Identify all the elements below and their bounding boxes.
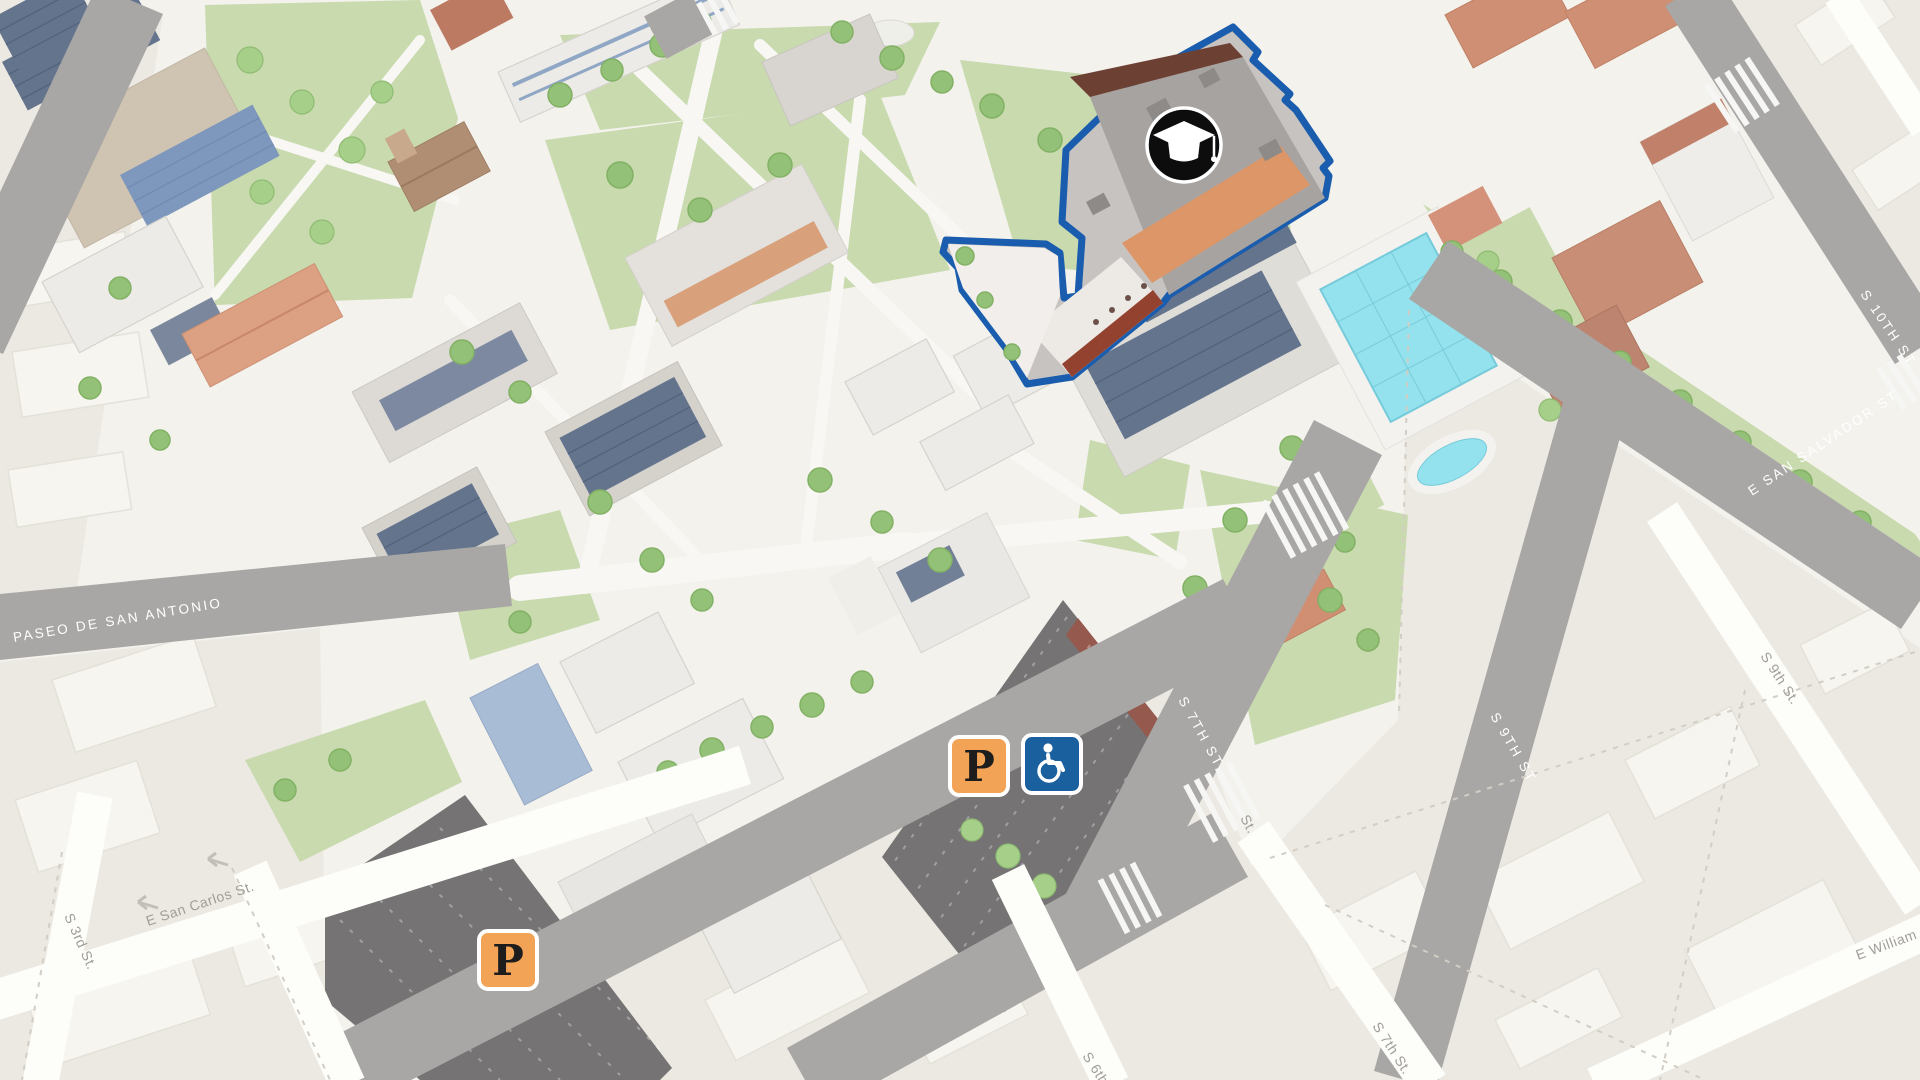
parking-marker-south[interactable]: P [479,931,537,989]
campus-map[interactable]: PASEO DE SAN ANTONIO S 7TH ST S 9TH ST S… [0,0,1920,1080]
parking-marker-label: P [492,936,524,985]
parking-marker-label: P [963,742,995,791]
accessible-parking-marker[interactable] [1023,735,1081,793]
parking-marker-main[interactable]: P [950,737,1008,795]
graduation-cap-icon [1147,108,1221,182]
